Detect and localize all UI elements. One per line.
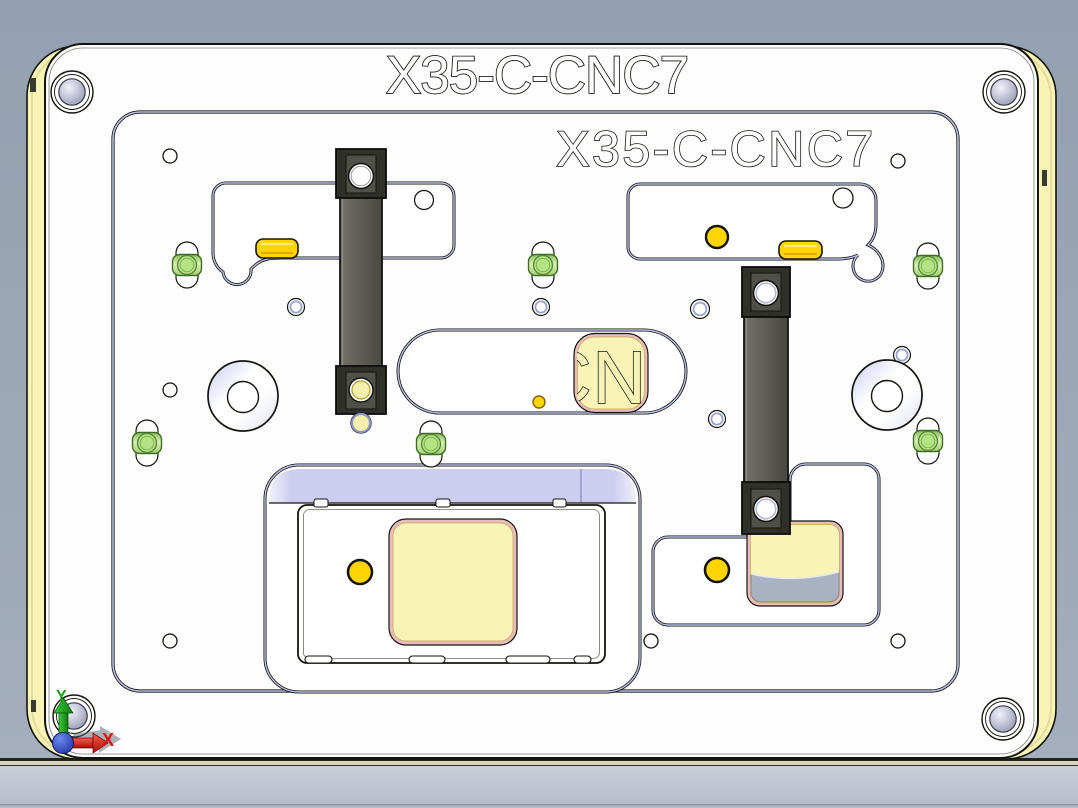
pin-below-clamp [351, 413, 371, 433]
pocket-bottom-center[interactable] [265, 465, 640, 692]
hole [891, 154, 905, 168]
spring-support[interactable] [133, 420, 162, 466]
hole [163, 634, 177, 648]
spring-support[interactable] [914, 243, 943, 289]
engraved-title-top: X35-C-CNC7 [386, 46, 688, 105]
clamp-hole [754, 497, 779, 522]
table-edge-khaki [0, 761, 1078, 765]
spring-support[interactable] [417, 421, 446, 467]
clamp-bar-right[interactable] [742, 267, 790, 534]
hole [415, 191, 434, 210]
countersunk-hole [288, 299, 305, 316]
boss-right[interactable] [852, 360, 922, 430]
countersunk-hole [709, 411, 726, 428]
edge-notch [1042, 170, 1047, 186]
locating-tab[interactable] [256, 239, 298, 258]
hole [644, 634, 658, 648]
countersunk-hole [533, 299, 550, 316]
contact-button[interactable] [706, 226, 728, 248]
triad-origin-sphere[interactable] [53, 733, 74, 754]
small-button[interactable] [533, 396, 545, 408]
x-axis-label: X [102, 730, 114, 750]
hole [833, 188, 853, 208]
slot-center[interactable]: CNC [398, 330, 701, 419]
spring-support[interactable] [529, 242, 558, 288]
model-view: X35-C-CNC7 X35-C-CNC7 [0, 0, 1078, 808]
contact-button[interactable] [348, 560, 372, 584]
edge-notch [31, 700, 36, 712]
corner-screw[interactable] [51, 71, 93, 113]
engraved-title-plate: X35-C-CNC7 [556, 121, 876, 177]
table-front-edge [0, 758, 1078, 808]
locating-tab[interactable] [779, 241, 822, 259]
corner-screw[interactable] [983, 71, 1025, 113]
contact-button[interactable] [705, 558, 729, 582]
hole [163, 383, 177, 397]
cad-viewport: X35-C-CNC7 X35-C-CNC7 [0, 0, 1078, 808]
corner-screw[interactable] [982, 698, 1024, 740]
clamp-hole [349, 164, 374, 189]
spring-support[interactable] [914, 418, 943, 464]
boss-left[interactable] [208, 361, 278, 431]
workpiece-pad-bottom[interactable] [389, 519, 517, 645]
spring-support[interactable] [173, 242, 202, 288]
table-front-face [0, 766, 1078, 808]
countersunk-hole [691, 300, 710, 319]
edge-notch [30, 78, 36, 92]
clamp-hole [754, 281, 779, 306]
hole [891, 634, 905, 648]
hole [163, 149, 177, 163]
y-axis-label: Y [56, 688, 67, 705]
table-bottom-line [0, 804, 1078, 806]
clamp-bar-left[interactable] [336, 149, 386, 433]
